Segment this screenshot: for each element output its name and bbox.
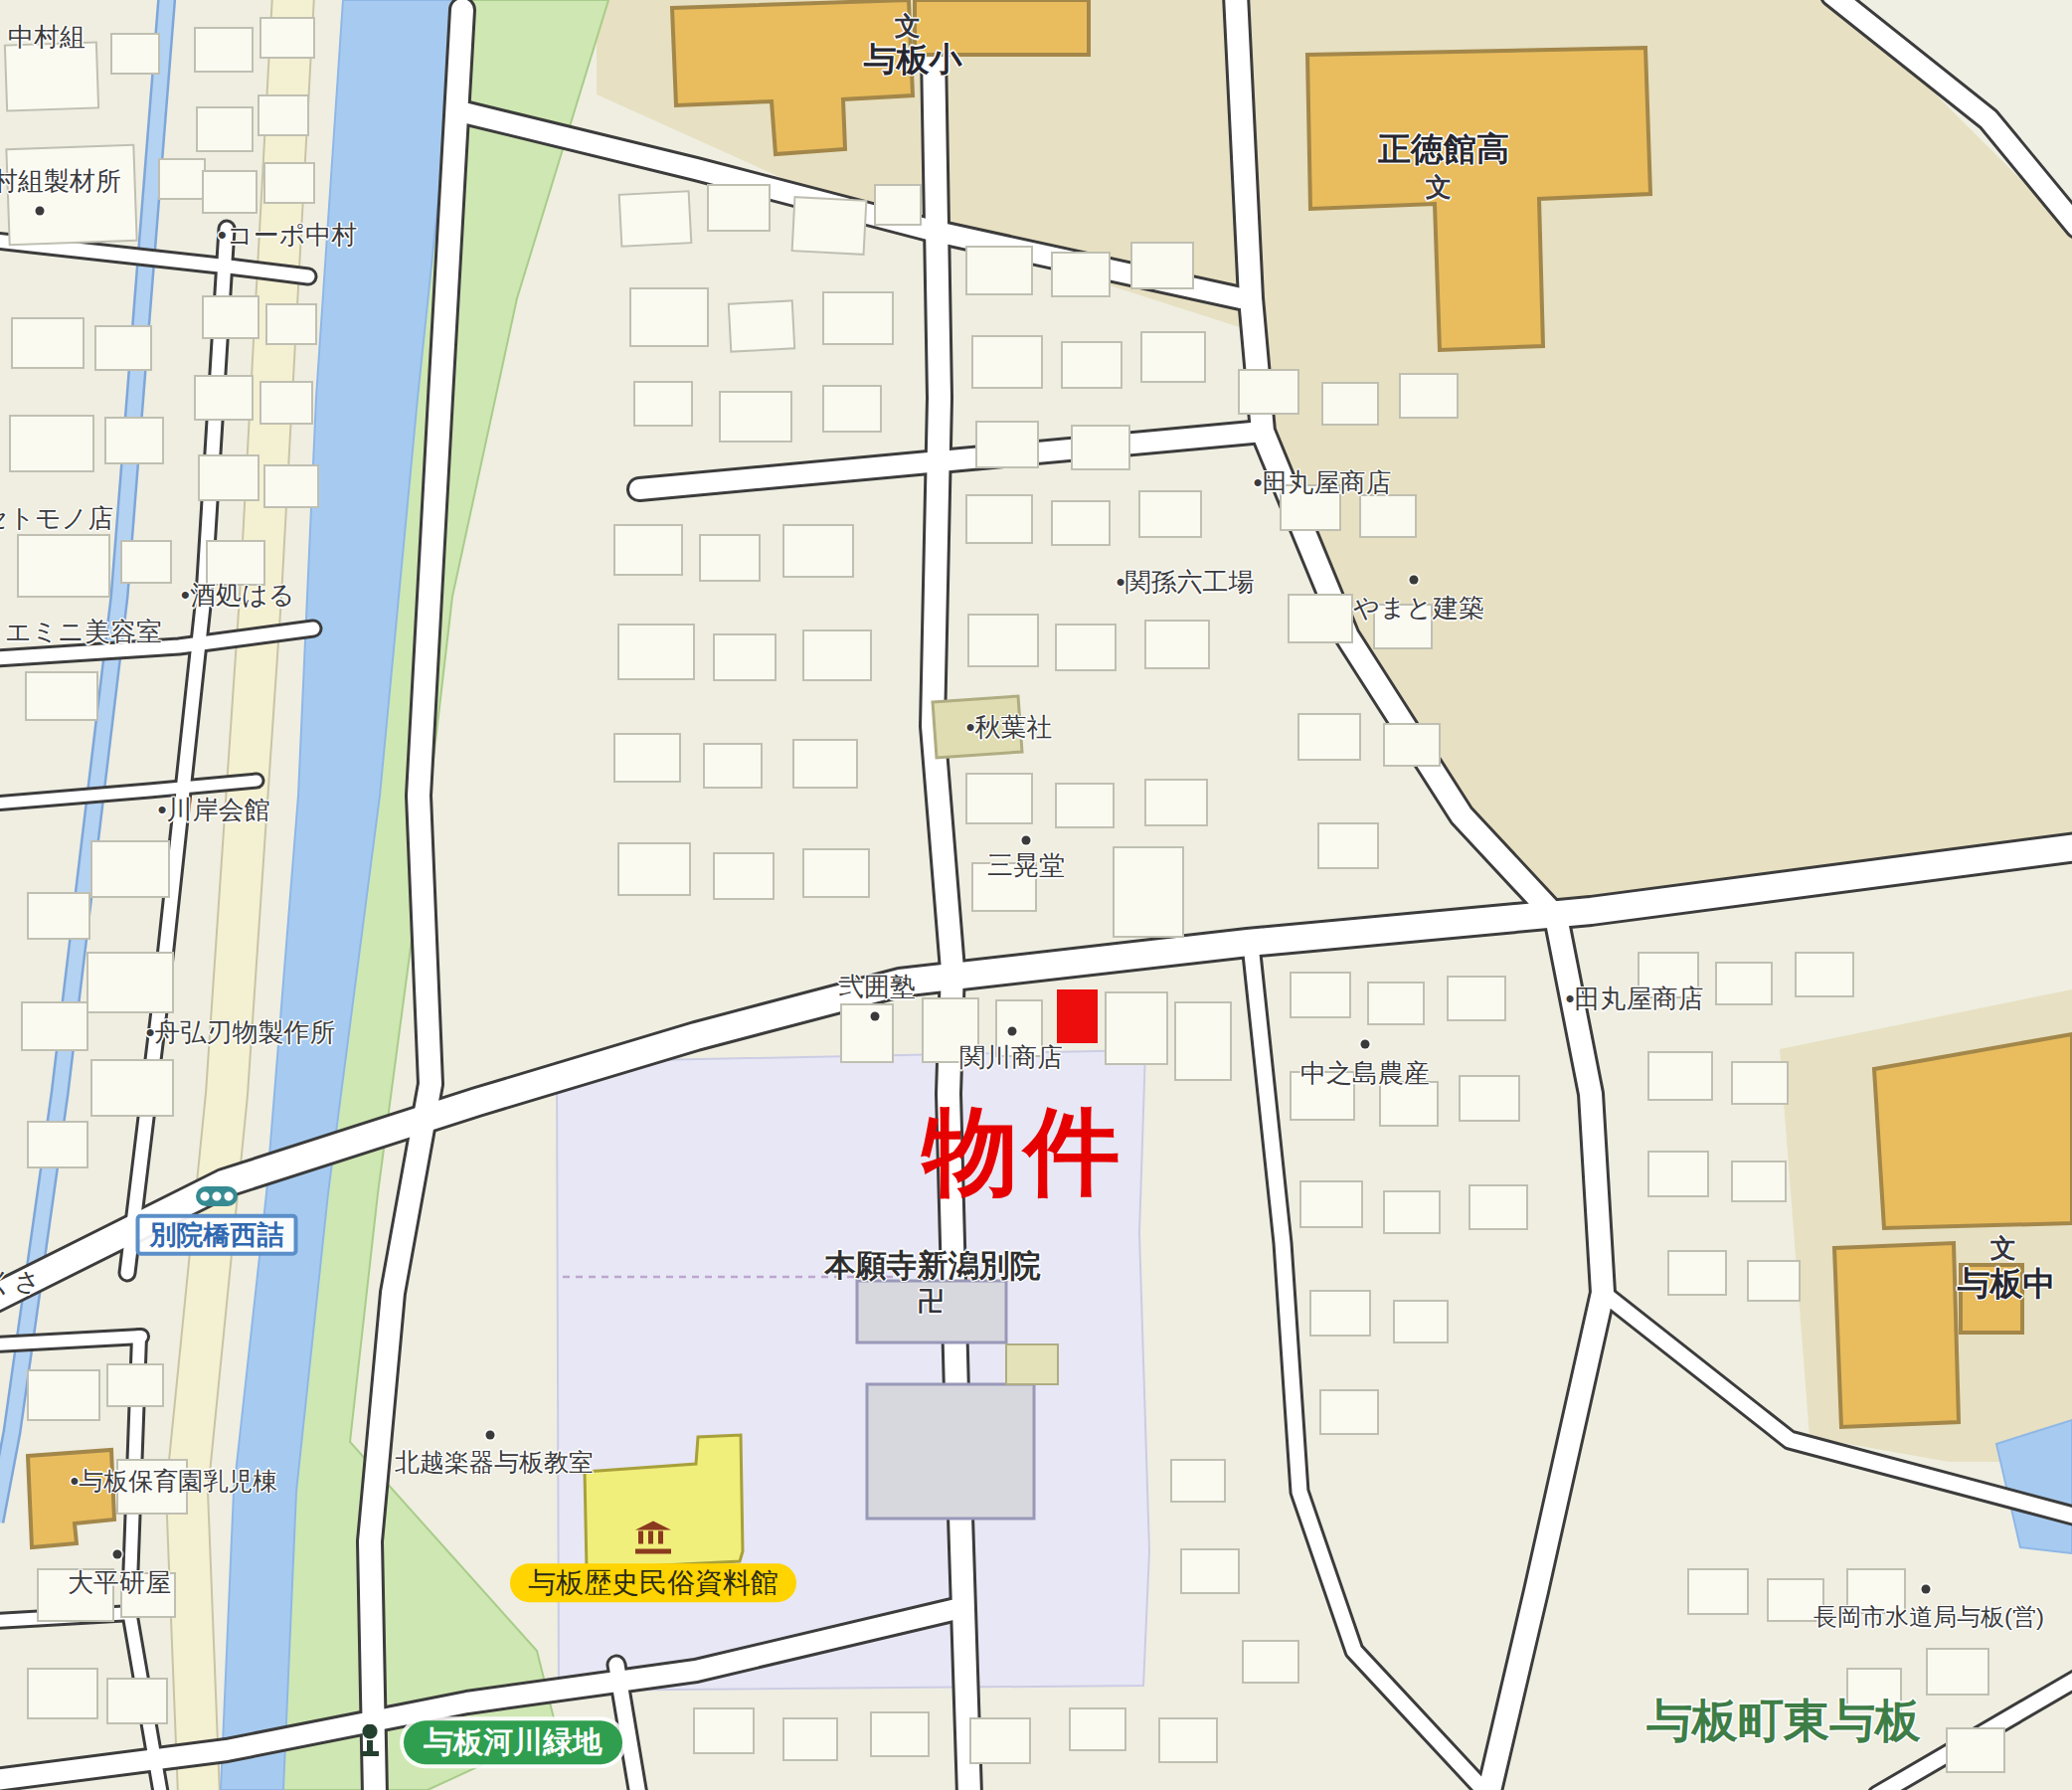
label-yoitamachi-higashiyoita: 与板町東与板 xyxy=(1646,1697,1921,1744)
label-corpo-nakamura: •コーポ中村 xyxy=(218,222,357,249)
label-kawagishi-kaikan: •川岸会館 xyxy=(157,797,269,823)
temple-symbol-manji: 卍 xyxy=(918,1288,944,1315)
label-nakamuragumi: 中村組 xyxy=(8,24,86,51)
poi-dot xyxy=(113,1550,122,1559)
poi-dot xyxy=(486,1431,495,1440)
map-labels-layer: 中村組村組製材所•コーポ中村与板小文正徳館高文•田丸屋商店•関孫六工場やまと建築… xyxy=(0,0,2072,1790)
label-yoita-junior-high: 与板中 xyxy=(1958,1267,2056,1302)
property-marker xyxy=(1057,989,1098,1043)
school-symbol-yoita-elementary: 文 xyxy=(895,13,921,40)
label-tamaruya-shoten-east: •田丸屋商店 xyxy=(1565,985,1703,1012)
map-canvas[interactable]: 中村組村組製材所•コーポ中村与板小文正徳館高文•田丸屋商店•関孫六工場やまと建築… xyxy=(0,0,2072,1790)
label-nagaoka-suidokyoku: 長岡市水道局与板(営) xyxy=(1813,1604,2044,1629)
poi-dot xyxy=(1410,576,1419,585)
label-funahiro-hamono: •舟弘刃物製作所 xyxy=(145,1019,335,1046)
label-sekikawa-shoten: 関川商店 xyxy=(959,1044,1063,1071)
label-nakamuragumi-sawmill: 村組製材所 xyxy=(0,168,121,195)
label-nakanoshima-nosan: 中之島農産 xyxy=(1300,1060,1430,1087)
label-honganji-niigata-betsuin: 本願寺新潟別院 xyxy=(825,1250,1041,1283)
poi-dot xyxy=(1008,1027,1017,1036)
poi-dot xyxy=(1361,1040,1370,1049)
label-sakedokoro-haru: •酒処はる xyxy=(181,582,294,609)
label-setomono-ten: セトモノ店 xyxy=(0,505,113,532)
badge-betsuinbashi-nishizume: 別院橋西詰 xyxy=(136,1214,298,1256)
poi-dot xyxy=(1922,1585,1931,1594)
label-akibasha: •秋葉社 xyxy=(965,714,1052,741)
label-shotokukan-high: 正徳館高 xyxy=(1378,132,1509,167)
label-kusa: くさ xyxy=(0,1269,41,1296)
label-tamaruya-shoten-north: •田丸屋商店 xyxy=(1253,469,1391,496)
poi-dot xyxy=(36,207,45,216)
badge-yoita-museum: 与板歴史民俗資料館 xyxy=(510,1563,796,1602)
poi-dot xyxy=(1022,836,1031,845)
traffic-light-icon xyxy=(196,1186,238,1206)
fountain-icon xyxy=(360,1724,380,1756)
poi-dot xyxy=(871,1012,880,1021)
label-sekimagoroku-kojo: •関孫六工場 xyxy=(1116,569,1254,596)
label-yoita-elementary: 与板小 xyxy=(864,43,962,78)
school-symbol-yoita-junior-high: 文 xyxy=(1990,1235,2016,1262)
badge-yoita-kasen-ryokuchi: 与板河川緑地 xyxy=(404,1720,622,1764)
label-ohira-togiya: 大平研屋 xyxy=(68,1569,171,1596)
label-emini-biyoshitsu: エミニ美容室 xyxy=(5,619,162,645)
label-yoita-hoikuen: •与板保育園乳児棟 xyxy=(71,1468,278,1494)
label-bukken: 物件 xyxy=(923,1102,1125,1202)
museum-icon xyxy=(635,1521,671,1554)
label-sankodo: 三晃堂 xyxy=(987,852,1065,879)
label-hokuetsu-gakki: 北越楽器与板教室 xyxy=(395,1449,594,1475)
school-symbol-shotokukan-high: 文 xyxy=(1426,174,1452,201)
label-nii-juku: 弐囲塾 xyxy=(838,974,916,1000)
label-yamato-kenchiku: やまと建築 xyxy=(1353,595,1484,622)
